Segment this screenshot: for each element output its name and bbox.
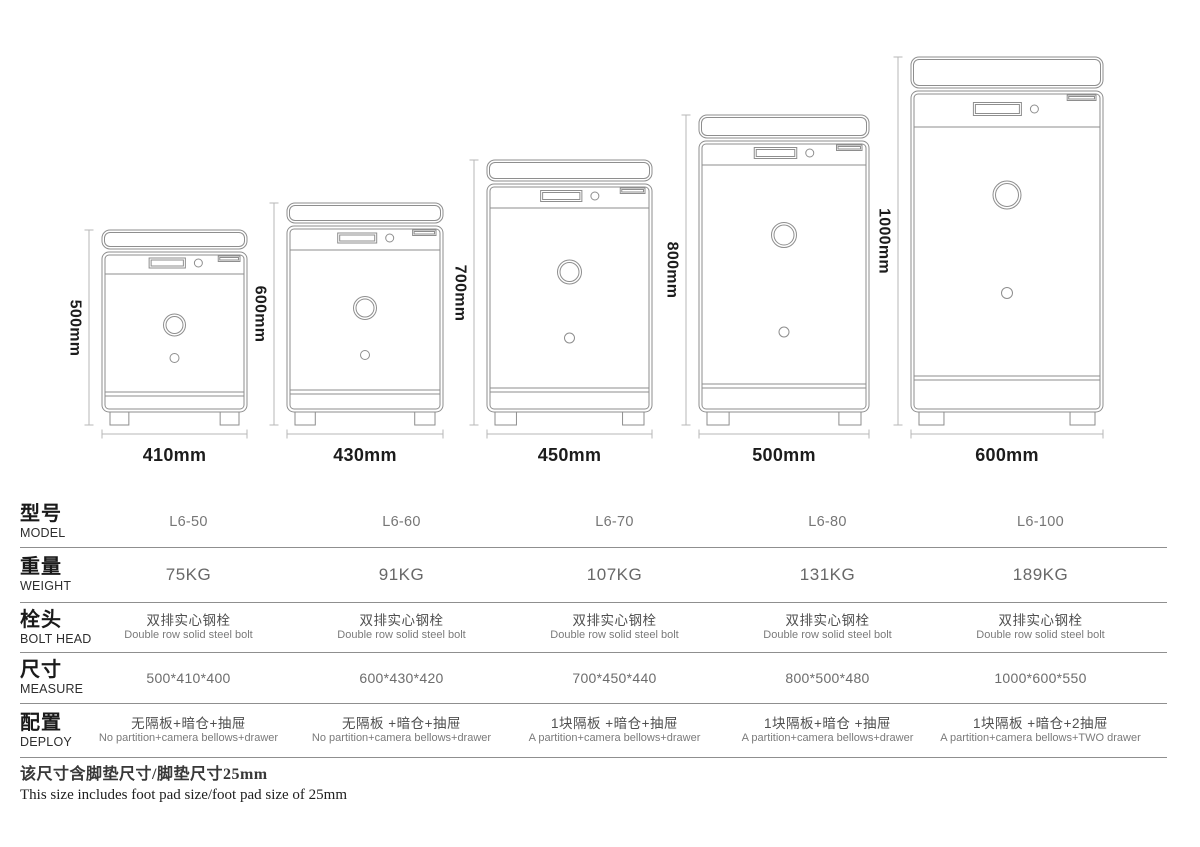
footnote-zh: 该尺寸含脚垫尺寸/脚垫尺寸25mm bbox=[20, 760, 347, 784]
panel-button bbox=[386, 234, 394, 242]
row-label-zh: 栓头 bbox=[20, 610, 82, 631]
deploy-value: 无隔板 +暗仓+抽屉 No partition+camera bellows+d… bbox=[295, 716, 508, 744]
row-label-measure: 尺寸 MEASURE bbox=[20, 660, 82, 696]
bolt-head-en: Double row solid steel bolt bbox=[508, 629, 721, 642]
row-label-weight: 重量 WEIGHT bbox=[20, 557, 82, 593]
model-value: L6-80 bbox=[721, 514, 934, 530]
bolt-head-value: 双排实心钢栓 Double row solid steel bolt bbox=[934, 613, 1147, 641]
table-row-weight: 重量 WEIGHT 75KG 91KG 107KG 131KG 189KG bbox=[20, 548, 1167, 603]
deploy-zh: 1块隔板+暗仓 +抽屉 bbox=[721, 716, 934, 732]
table-row-measure: 尺寸 MEASURE 500*410*400 600*430*420 700*4… bbox=[20, 653, 1167, 704]
handle-plate bbox=[1067, 95, 1096, 101]
weight-value: 189KG bbox=[934, 565, 1147, 585]
dial-knob bbox=[558, 260, 582, 284]
row-label-bolt-head: 栓头 BOLT HEAD bbox=[20, 610, 82, 646]
deploy-value: 无隔板+暗仓+抽屉 No partition+camera bellows+dr… bbox=[82, 716, 295, 744]
foot-pad bbox=[1070, 412, 1095, 425]
measure-value: 700*450*440 bbox=[508, 670, 721, 686]
safe-height-label: 800mm bbox=[664, 242, 681, 299]
deploy-zh: 无隔板 +暗仓+抽屉 bbox=[295, 716, 508, 732]
safe-figure bbox=[682, 115, 870, 439]
spec-table: 型号 MODEL L6-50 L6-60 L6-70 L6-80 L6-100 … bbox=[20, 497, 1167, 758]
safe-width-label: 600mm bbox=[975, 445, 1039, 465]
spec-sheet: 500mm 600mm 700mm 800mm 1000mm 410mm 430… bbox=[0, 0, 1200, 847]
measure-value: 800*500*480 bbox=[721, 670, 934, 686]
row-label-en: BOLT HEAD bbox=[20, 632, 82, 646]
dial-knob bbox=[354, 297, 377, 320]
safe-figure bbox=[470, 160, 653, 439]
dimension-lines bbox=[682, 115, 870, 439]
safe-body bbox=[487, 184, 652, 412]
model-value: L6-50 bbox=[82, 514, 295, 530]
row-label-zh: 配置 bbox=[20, 713, 82, 734]
deploy-value: 1块隔板 +暗仓+2抽屉 A partition+camera bellows+… bbox=[934, 716, 1147, 744]
safe-width-label: 430mm bbox=[333, 445, 397, 465]
safe-height-label: 1000mm bbox=[876, 208, 893, 274]
deploy-en: A partition+camera bellows+TWO drawer bbox=[934, 732, 1147, 745]
panel-button bbox=[806, 149, 814, 157]
bolt-head-zh: 双排实心钢栓 bbox=[934, 613, 1147, 629]
bolt-head-zh: 双排实心钢栓 bbox=[508, 613, 721, 629]
deploy-value: 1块隔板+暗仓 +抽屉 A partition+camera bellows+d… bbox=[721, 716, 934, 744]
safe-figure bbox=[894, 57, 1104, 439]
keyhole bbox=[779, 327, 789, 337]
dial-knob bbox=[993, 181, 1021, 209]
deploy-value: 1块隔板 +暗仓+抽屉 A partition+camera bellows+d… bbox=[508, 716, 721, 744]
table-row-bolt-head: 栓头 BOLT HEAD 双排实心钢栓 Double row solid ste… bbox=[20, 603, 1167, 653]
safe-height-label: 500mm bbox=[67, 300, 84, 357]
weight-value: 91KG bbox=[295, 565, 508, 585]
weight-value: 75KG bbox=[82, 565, 295, 585]
handle-plate bbox=[620, 188, 645, 194]
bolt-head-en: Double row solid steel bolt bbox=[934, 629, 1147, 642]
row-label-zh: 重量 bbox=[20, 557, 82, 578]
row-label-zh: 型号 bbox=[20, 504, 82, 525]
safe-width-label: 410mm bbox=[143, 445, 207, 465]
foot-pad bbox=[919, 412, 944, 425]
row-label-en: MEASURE bbox=[20, 682, 82, 696]
deploy-en: No partition+camera bellows+drawer bbox=[295, 732, 508, 745]
keyhole bbox=[361, 351, 370, 360]
model-value: L6-60 bbox=[295, 514, 508, 530]
bolt-head-value: 双排实心钢栓 Double row solid steel bolt bbox=[82, 613, 295, 641]
foot-pad bbox=[623, 412, 644, 425]
footnote-en: This size includes foot pad size/foot pa… bbox=[20, 787, 347, 804]
size-diagram: 500mm 600mm 700mm 800mm 1000mm 410mm 430… bbox=[0, 0, 1200, 480]
bolt-head-zh: 双排实心钢栓 bbox=[82, 613, 295, 629]
weight-value: 131KG bbox=[721, 565, 934, 585]
safe-top-cap bbox=[699, 115, 869, 138]
dimension-lines bbox=[270, 203, 444, 439]
deploy-zh: 1块隔板 +暗仓+2抽屉 bbox=[934, 716, 1147, 732]
row-label-en: WEIGHT bbox=[20, 579, 82, 593]
measure-value: 1000*600*550 bbox=[934, 670, 1147, 686]
safe-top-cap bbox=[487, 160, 652, 181]
row-label-en: MODEL bbox=[20, 526, 82, 540]
weight-value: 107KG bbox=[508, 565, 721, 585]
safe-height-label: 600mm bbox=[252, 286, 269, 343]
measure-value: 500*410*400 bbox=[82, 670, 295, 686]
foot-pad bbox=[295, 412, 315, 425]
safe-width-label: 450mm bbox=[538, 445, 602, 465]
safe-width-label: 500mm bbox=[752, 445, 816, 465]
safe-body bbox=[699, 141, 869, 412]
panel-button bbox=[1030, 105, 1038, 113]
deploy-en: No partition+camera bellows+drawer bbox=[82, 732, 295, 745]
table-row-deploy: 配置 DEPLOY 无隔板+暗仓+抽屉 No partition+camera … bbox=[20, 704, 1167, 758]
model-value: L6-100 bbox=[934, 514, 1147, 530]
safe-figure bbox=[270, 203, 444, 439]
dimension-lines bbox=[894, 57, 1104, 439]
deploy-en: A partition+camera bellows+drawer bbox=[721, 732, 934, 745]
foot-pad bbox=[415, 412, 435, 425]
safe-body bbox=[102, 252, 247, 412]
safe-figure bbox=[85, 230, 248, 439]
bolt-head-value: 双排实心钢栓 Double row solid steel bolt bbox=[508, 613, 721, 641]
deploy-zh: 1块隔板 +暗仓+抽屉 bbox=[508, 716, 721, 732]
deploy-zh: 无隔板+暗仓+抽屉 bbox=[82, 716, 295, 732]
dial-knob bbox=[164, 314, 186, 336]
footnote: 该尺寸含脚垫尺寸/脚垫尺寸25mm This size includes foo… bbox=[20, 760, 347, 804]
foot-pad bbox=[495, 412, 516, 425]
foot-pad bbox=[110, 412, 129, 425]
handle-plate bbox=[413, 230, 436, 236]
keyhole bbox=[1002, 288, 1013, 299]
handle-plate bbox=[837, 145, 863, 151]
measure-value: 600*430*420 bbox=[295, 670, 508, 686]
row-label-model: 型号 MODEL bbox=[20, 504, 82, 540]
model-value: L6-70 bbox=[508, 514, 721, 530]
bolt-head-zh: 双排实心钢栓 bbox=[295, 613, 508, 629]
bolt-head-value: 双排实心钢栓 Double row solid steel bolt bbox=[295, 613, 508, 641]
safe-height-label: 700mm bbox=[452, 265, 469, 322]
safe-top-cap bbox=[911, 57, 1103, 88]
row-label-en: DEPLOY bbox=[20, 735, 82, 749]
dial-knob bbox=[772, 223, 797, 248]
bolt-head-en: Double row solid steel bolt bbox=[295, 629, 508, 642]
keyhole bbox=[170, 354, 179, 363]
foot-pad bbox=[839, 412, 861, 425]
panel-button bbox=[591, 192, 599, 200]
bolt-head-value: 双排实心钢栓 Double row solid steel bolt bbox=[721, 613, 934, 641]
row-label-deploy: 配置 DEPLOY bbox=[20, 713, 82, 749]
bolt-head-zh: 双排实心钢栓 bbox=[721, 613, 934, 629]
row-label-zh: 尺寸 bbox=[20, 660, 82, 681]
panel-button bbox=[194, 259, 202, 267]
handle-plate bbox=[218, 256, 240, 262]
foot-pad bbox=[220, 412, 239, 425]
deploy-en: A partition+camera bellows+drawer bbox=[508, 732, 721, 745]
safe-body bbox=[911, 91, 1103, 412]
bolt-head-en: Double row solid steel bolt bbox=[82, 629, 295, 642]
bolt-head-en: Double row solid steel bolt bbox=[721, 629, 934, 642]
table-row-model: 型号 MODEL L6-50 L6-60 L6-70 L6-80 L6-100 bbox=[20, 497, 1167, 548]
keyhole bbox=[565, 333, 575, 343]
foot-pad bbox=[707, 412, 729, 425]
